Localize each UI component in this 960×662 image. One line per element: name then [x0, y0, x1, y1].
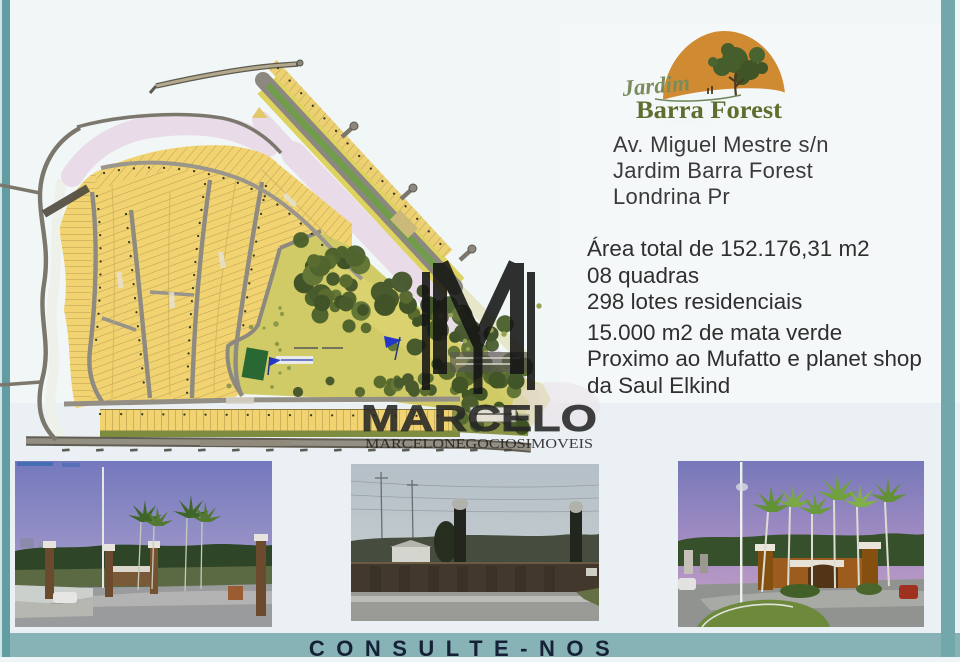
svg-text:MARCELONEGOCIOSIMOVEIS: MARCELONEGOCIOSIMOVEIS [365, 436, 593, 451]
svg-text:MARCELO: MARCELO [361, 398, 597, 439]
svg-text:Barra Forest: Barra Forest [636, 97, 783, 124]
